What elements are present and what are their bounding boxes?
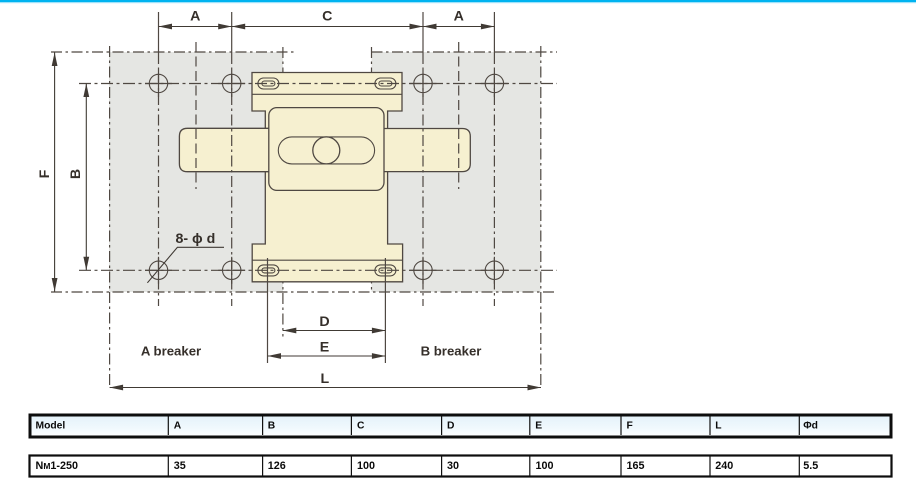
svg-text:5.5: 5.5 bbox=[803, 460, 818, 472]
svg-text:A: A bbox=[190, 8, 200, 24]
svg-text:126: 126 bbox=[268, 460, 286, 472]
svg-text:240: 240 bbox=[715, 460, 733, 472]
svg-text:B: B bbox=[68, 169, 84, 179]
svg-text:A breaker: A breaker bbox=[141, 343, 201, 358]
svg-text:D: D bbox=[319, 314, 329, 330]
svg-text:100: 100 bbox=[357, 460, 375, 472]
svg-text:C: C bbox=[357, 421, 365, 432]
svg-text:F: F bbox=[627, 421, 633, 432]
svg-text:B breaker: B breaker bbox=[421, 343, 482, 358]
svg-text:E: E bbox=[320, 340, 329, 356]
svg-text:A: A bbox=[174, 421, 182, 432]
svg-text:D: D bbox=[447, 421, 454, 432]
svg-text:F: F bbox=[37, 169, 53, 178]
svg-text:C: C bbox=[322, 8, 332, 24]
svg-text:8- ϕ d: 8- ϕ d bbox=[176, 231, 216, 247]
svg-text:30: 30 bbox=[447, 460, 459, 472]
svg-text:A: A bbox=[454, 8, 464, 24]
svg-text:Φd: Φd bbox=[803, 421, 818, 432]
svg-text:35: 35 bbox=[174, 460, 186, 472]
svg-text:100: 100 bbox=[536, 460, 554, 472]
svg-text:NM1-250: NM1-250 bbox=[36, 460, 79, 472]
svg-text:L: L bbox=[715, 421, 721, 432]
svg-text:B: B bbox=[268, 421, 275, 432]
svg-text:Model: Model bbox=[36, 421, 66, 432]
svg-text:165: 165 bbox=[627, 460, 645, 472]
svg-text:E: E bbox=[535, 421, 542, 432]
svg-text:L: L bbox=[320, 371, 329, 387]
